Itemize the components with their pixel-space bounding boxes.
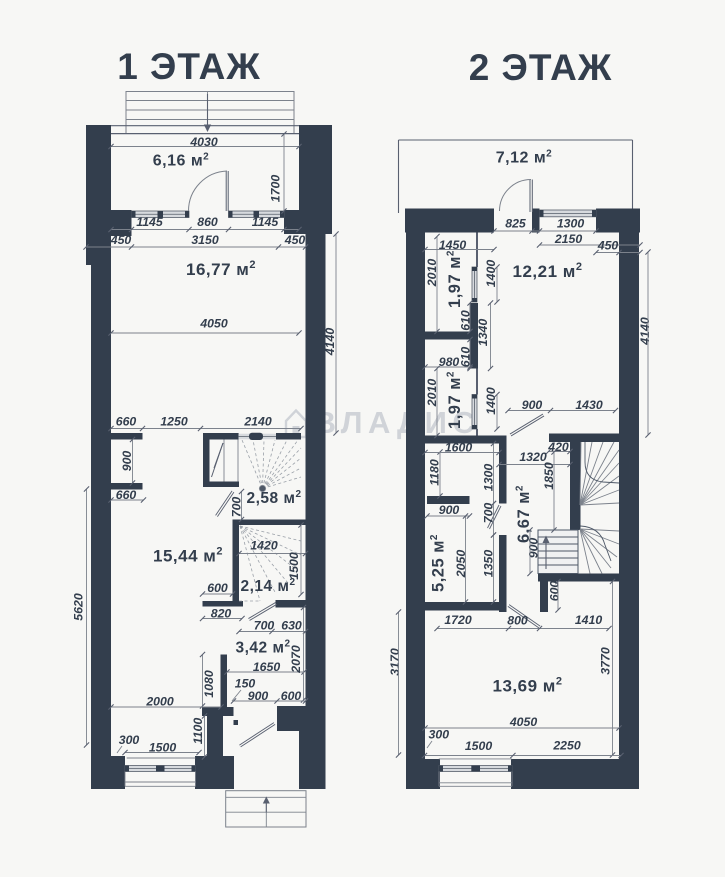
svg-text:6,16 м2: 6,16 м2 (153, 151, 209, 170)
svg-text:1500: 1500 (465, 739, 493, 753)
svg-text:1100: 1100 (191, 718, 205, 745)
svg-text:1430: 1430 (575, 398, 603, 412)
svg-text:3770: 3770 (598, 647, 612, 675)
svg-text:900: 900 (439, 503, 460, 517)
svg-text:700: 700 (254, 618, 275, 632)
svg-text:3,42 м2: 3,42 м2 (235, 638, 290, 656)
svg-text:1,97 м2: 1,97 м2 (445, 371, 464, 429)
svg-text:630: 630 (281, 618, 302, 632)
svg-text:12,21 м2: 12,21 м2 (513, 261, 583, 281)
svg-text:860: 860 (197, 215, 218, 229)
svg-text:600: 600 (207, 581, 228, 595)
svg-text:300: 300 (119, 733, 140, 747)
svg-text:1700: 1700 (268, 175, 282, 203)
svg-text:1400: 1400 (484, 260, 498, 288)
svg-text:4140: 4140 (638, 317, 652, 346)
svg-text:2000: 2000 (145, 694, 174, 708)
svg-text:450: 450 (110, 233, 132, 247)
svg-text:825: 825 (505, 216, 526, 230)
svg-text:1410: 1410 (575, 613, 603, 627)
svg-text:2150: 2150 (554, 232, 583, 246)
svg-text:1400: 1400 (484, 387, 498, 415)
svg-text:900: 900 (120, 451, 134, 472)
svg-text:3150: 3150 (191, 233, 219, 247)
svg-text:5620: 5620 (71, 593, 85, 621)
svg-text:1720: 1720 (444, 613, 472, 627)
svg-text:1500: 1500 (287, 552, 301, 580)
svg-text:1250: 1250 (160, 414, 188, 428)
svg-text:1320: 1320 (519, 450, 547, 464)
svg-text:4050: 4050 (509, 715, 538, 729)
svg-text:4140: 4140 (323, 328, 337, 357)
svg-text:1420: 1420 (250, 538, 278, 552)
svg-text:15,44 м2: 15,44 м2 (153, 545, 223, 565)
svg-text:450: 450 (597, 238, 619, 252)
svg-text:900: 900 (522, 398, 543, 412)
svg-text:1 ЭТАЖ: 1 ЭТАЖ (117, 46, 261, 87)
svg-text:2140: 2140 (243, 414, 272, 428)
svg-text:600: 600 (547, 581, 561, 602)
svg-text:7,12 м2: 7,12 м2 (496, 148, 552, 167)
svg-text:1300: 1300 (557, 216, 585, 230)
svg-text:1145: 1145 (252, 215, 279, 229)
svg-text:5,25 м2: 5,25 м2 (429, 534, 448, 592)
svg-text:2,58 м2: 2,58 м2 (246, 489, 301, 507)
svg-text:660: 660 (116, 414, 137, 428)
svg-text:2,14 м2: 2,14 м2 (240, 577, 295, 595)
svg-text:1180: 1180 (427, 459, 441, 486)
svg-text:800: 800 (507, 613, 528, 627)
svg-text:1145: 1145 (136, 215, 163, 229)
svg-text:1340: 1340 (476, 319, 490, 347)
svg-text:13,69 м2: 13,69 м2 (493, 675, 563, 695)
svg-text:450: 450 (284, 233, 306, 247)
svg-text:4050: 4050 (199, 316, 228, 330)
svg-text:300: 300 (429, 727, 450, 741)
svg-text:16,77 м2: 16,77 м2 (186, 259, 256, 279)
svg-text:1,97 м2: 1,97 м2 (445, 250, 464, 308)
svg-text:1080: 1080 (202, 670, 216, 698)
svg-text:2070: 2070 (289, 645, 303, 674)
svg-text:3170: 3170 (388, 648, 402, 676)
svg-text:2 ЭТАЖ: 2 ЭТАЖ (469, 47, 613, 88)
svg-text:900: 900 (526, 538, 540, 559)
svg-text:2250: 2250 (552, 738, 581, 752)
